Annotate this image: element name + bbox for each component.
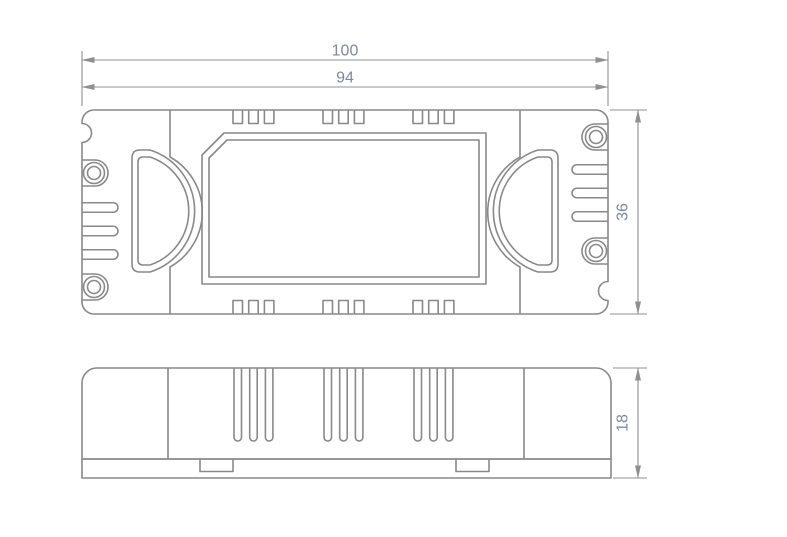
- vent-slot: [354, 301, 364, 315]
- vent-slot: [572, 165, 608, 175]
- base-plate-tab: [456, 459, 489, 472]
- screw-hole-ring: [84, 163, 105, 184]
- side-view: [82, 368, 611, 478]
- vent-slot: [82, 203, 118, 213]
- vent-slot: [82, 250, 118, 260]
- vent-slot: [414, 368, 422, 441]
- vent-slot: [429, 110, 439, 124]
- vent-slot: [572, 188, 608, 198]
- vent-slot: [249, 110, 259, 124]
- vent-slot: [339, 110, 349, 124]
- platform-edge-right: [488, 110, 520, 314]
- dimension-label-height: 18: [615, 414, 632, 432]
- vent-slot: [233, 110, 243, 124]
- dimension-labels: 100 94 36 18: [332, 43, 632, 432]
- vent-slot: [413, 110, 423, 124]
- vent-slot: [445, 368, 453, 441]
- screw-hole: [88, 281, 101, 294]
- vent-slot: [339, 301, 349, 315]
- top-view: [82, 110, 608, 314]
- vent-slot: [82, 226, 118, 236]
- vent-slot: [340, 368, 348, 441]
- vent-slot: [413, 301, 423, 315]
- label-area-inner: [209, 140, 479, 277]
- screw-hole-ring: [586, 127, 607, 148]
- technical-drawing: 100 94 36 18: [0, 0, 787, 537]
- vent-slot: [430, 368, 438, 441]
- vent-slot: [250, 368, 258, 441]
- label-area-outer: [202, 133, 486, 284]
- platform-edge-left: [170, 110, 202, 314]
- vent-slot: [572, 212, 608, 222]
- vent-slot: [323, 301, 333, 315]
- screw-hole-ring: [84, 277, 105, 298]
- screw-hole: [590, 131, 603, 144]
- dimension-label-length-inner: 94: [336, 70, 354, 87]
- vent-slot: [354, 110, 364, 124]
- vent-slot: [444, 301, 454, 315]
- vent-slot: [233, 301, 243, 315]
- vent-slot: [324, 368, 332, 441]
- d-emboss-left-inner: [138, 157, 189, 265]
- screw-hole: [88, 167, 101, 180]
- screw-hole-ring: [586, 241, 607, 262]
- dimension-label-length-outer: 100: [332, 43, 359, 60]
- vent-slot: [249, 301, 259, 315]
- vent-slot: [444, 110, 454, 124]
- d-emboss-right-inner: [499, 157, 552, 265]
- vent-slot: [429, 301, 439, 315]
- base-plate-tab: [200, 459, 233, 472]
- base-plate: [82, 459, 611, 478]
- vent-slot: [323, 110, 333, 124]
- vent-slot: [264, 110, 274, 124]
- drawing-canvas: 100 94 36 18: [0, 0, 787, 537]
- vent-slot: [355, 368, 363, 441]
- vent-slot: [265, 368, 273, 441]
- dimension-label-width: 36: [615, 203, 632, 221]
- screw-hole: [590, 245, 603, 258]
- vent-slot: [234, 368, 242, 441]
- vent-slot: [264, 301, 274, 315]
